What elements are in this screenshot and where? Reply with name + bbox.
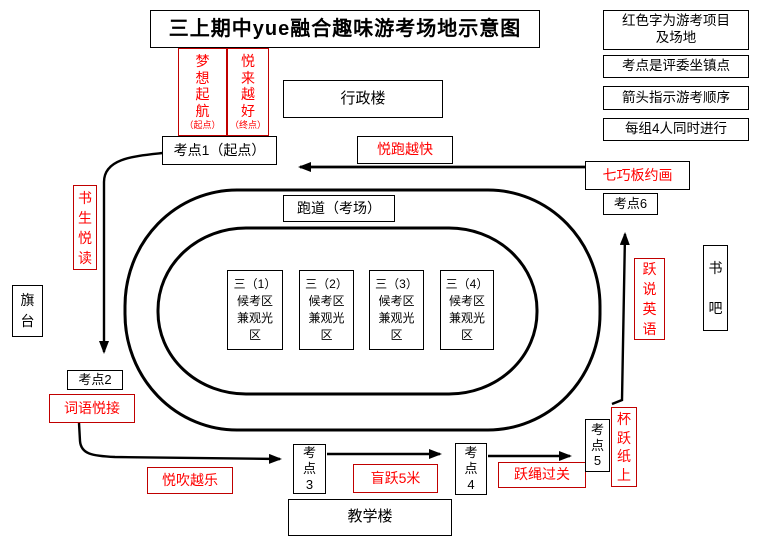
flag-stand: 旗 台 bbox=[12, 285, 43, 337]
checkpoint-1: 考点1（起点） bbox=[162, 136, 277, 165]
arrow-cp2-to-cp3 bbox=[79, 423, 280, 459]
project-dream-sail-note: （起点） bbox=[184, 121, 220, 131]
checkpoint-2: 考点2 bbox=[67, 370, 123, 390]
checkpoint-3: 考 点 3 bbox=[293, 444, 326, 494]
project-blind-jump: 盲跃5米 bbox=[353, 464, 438, 493]
checkpoint-5: 考 点 5 bbox=[585, 419, 610, 472]
project-speak-english: 跃 说 英 语 bbox=[634, 258, 665, 340]
teaching-building: 教学楼 bbox=[288, 499, 452, 536]
project-rope-skip: 跃绳过关 bbox=[498, 462, 586, 488]
project-better-better-label: 悦 来 越 好 bbox=[241, 53, 255, 119]
project-better-better-note: （终点） bbox=[230, 121, 266, 131]
project-word-relay: 词语悦接 bbox=[49, 394, 135, 423]
legend-arrows: 箭头指示游考顺序 bbox=[603, 86, 749, 110]
project-tangram-draw: 七巧板约画 bbox=[585, 161, 690, 190]
page-title: 三上期中yue融合趣味游考场地示意图 bbox=[150, 10, 540, 48]
checkpoint-6: 考点6 bbox=[603, 193, 658, 215]
book-bar: 书 吧 bbox=[703, 245, 728, 331]
project-scholar-reading: 书 生 悦 读 bbox=[73, 185, 97, 270]
project-run-fast: 悦跑越快 bbox=[357, 136, 453, 164]
waiting-area-3: 三（3） 候考区 兼观光 区 bbox=[369, 270, 424, 350]
project-dream-sail: 梦 想 起 航 （起点） bbox=[178, 48, 227, 136]
waiting-area-2: 三（2） 候考区 兼观光 区 bbox=[299, 270, 354, 350]
project-blow-music: 悦吹越乐 bbox=[147, 467, 233, 494]
arrow-cp5-to-cp6 bbox=[612, 234, 625, 404]
project-cup-on-paper: 杯 跃 纸 上 bbox=[611, 407, 637, 487]
track-label: 跑道（考场） bbox=[283, 195, 395, 222]
schematic-diagram: 三上期中yue融合趣味游考场地示意图 红色字为游考项目 及场地 考点是评委坐镇点… bbox=[0, 0, 757, 549]
waiting-area-1: 三（1） 候考区 兼观光 区 bbox=[227, 270, 283, 350]
legend-checkpoint: 考点是评委坐镇点 bbox=[603, 55, 749, 78]
project-better-better: 悦 来 越 好 （终点） bbox=[227, 48, 269, 136]
arrow-cp1-to-cp2 bbox=[104, 153, 163, 352]
project-dream-sail-label: 梦 想 起 航 bbox=[196, 53, 210, 119]
admin-building: 行政楼 bbox=[283, 80, 443, 118]
checkpoint-4: 考 点 4 bbox=[455, 443, 487, 495]
legend-red-text: 红色字为游考项目 及场地 bbox=[603, 10, 749, 50]
waiting-area-4: 三（4） 候考区 兼观光 区 bbox=[440, 270, 494, 350]
legend-groups: 每组4人同时进行 bbox=[603, 118, 749, 141]
